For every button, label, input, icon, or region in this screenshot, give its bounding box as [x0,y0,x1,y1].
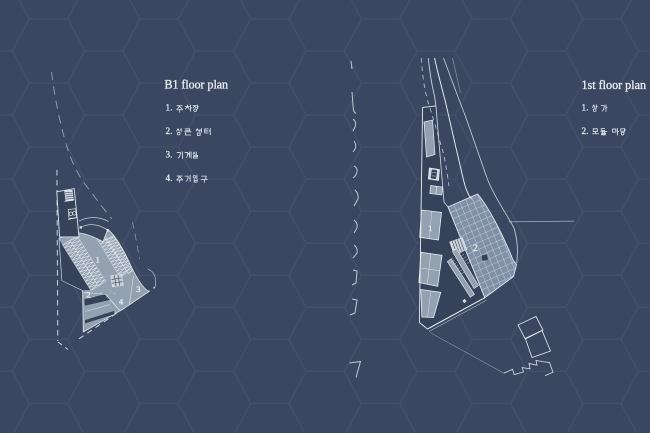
svg-text:1: 1 [96,255,100,264]
svg-text:3.: 3. [166,149,173,159]
svg-text:1: 1 [428,224,432,233]
svg-text:2.: 2. [166,126,173,136]
svg-text:B1 floor plan: B1 floor plan [165,77,229,92]
svg-text:1st floor plan: 1st floor plan [582,77,647,92]
svg-text:4.: 4. [166,173,173,183]
svg-text:3: 3 [136,285,140,294]
svg-text:1.: 1. [582,102,589,112]
svg-text:2.: 2. [582,126,589,136]
svg-text:2: 2 [473,244,478,254]
svg-text:1.: 1. [166,103,173,113]
svg-text:2: 2 [86,290,90,299]
